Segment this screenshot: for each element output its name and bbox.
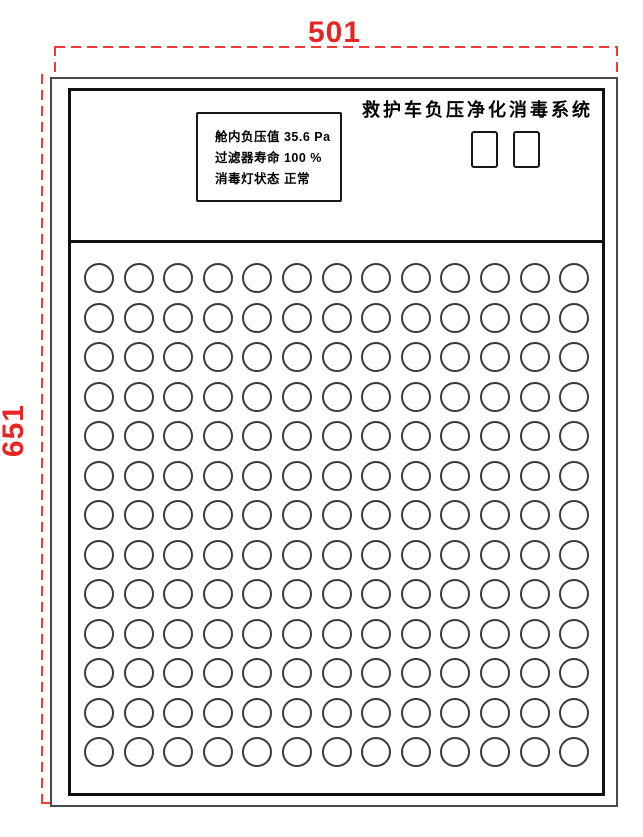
vent-hole — [203, 737, 233, 767]
vent-hole — [520, 303, 550, 333]
vent-hole — [163, 342, 193, 372]
vent-hole — [520, 421, 550, 451]
vent-hole — [361, 500, 391, 530]
vent-hole — [559, 461, 589, 491]
panel-button-1 — [471, 131, 498, 168]
vent-hole — [520, 658, 550, 688]
vent-hole — [163, 461, 193, 491]
vent-hole — [480, 303, 510, 333]
vent-hole — [520, 500, 550, 530]
vent-hole — [163, 500, 193, 530]
vent-hole — [242, 658, 272, 688]
technical-drawing-canvas: 501 651 救护车负压净化消毒系统 舱内负压值 35.6 Pa 过滤器寿命 … — [0, 0, 643, 837]
vent-hole — [282, 619, 312, 649]
vent-hole — [124, 303, 154, 333]
vent-hole — [124, 382, 154, 412]
vent-hole — [480, 382, 510, 412]
vent-hole — [440, 303, 470, 333]
vent-hole — [520, 619, 550, 649]
vent-hole — [361, 737, 391, 767]
vent-hole — [124, 540, 154, 570]
vent-hole — [242, 303, 272, 333]
vent-hole — [361, 579, 391, 609]
vent-hole — [163, 737, 193, 767]
vent-hole — [124, 263, 154, 293]
vent-hole — [124, 461, 154, 491]
vent-hole — [559, 737, 589, 767]
vent-hole — [203, 500, 233, 530]
vent-hole — [84, 579, 114, 609]
vent-hole — [559, 303, 589, 333]
vent-hole — [203, 698, 233, 728]
vent-hole — [440, 540, 470, 570]
vent-hole — [361, 698, 391, 728]
vent-hole — [124, 737, 154, 767]
vent-hole — [480, 737, 510, 767]
vent-hole — [480, 461, 510, 491]
vent-hole — [480, 658, 510, 688]
vent-hole — [322, 421, 352, 451]
display-line-pressure: 舱内负压值 35.6 Pa — [215, 127, 340, 148]
vent-hole — [282, 698, 312, 728]
vent-hole — [124, 579, 154, 609]
vent-hole — [401, 579, 431, 609]
vent-hole — [361, 421, 391, 451]
dimension-line-height — [41, 74, 43, 804]
vent-hole — [84, 540, 114, 570]
vent-hole — [322, 342, 352, 372]
vent-hole — [401, 461, 431, 491]
vent-hole — [242, 421, 272, 451]
vent-hole — [282, 540, 312, 570]
vent-hole — [203, 540, 233, 570]
vent-hole — [163, 658, 193, 688]
vent-hole — [203, 421, 233, 451]
vent-hole — [203, 382, 233, 412]
vent-hole — [520, 579, 550, 609]
vent-hole — [520, 737, 550, 767]
vent-hole — [440, 658, 470, 688]
vent-hole — [559, 540, 589, 570]
vent-hole — [163, 698, 193, 728]
vent-hole — [559, 342, 589, 372]
display-line-filter-life: 过滤器寿命 100 % — [215, 148, 340, 169]
vent-hole — [163, 303, 193, 333]
vent-hole — [163, 382, 193, 412]
vent-hole — [559, 421, 589, 451]
vent-hole — [480, 500, 510, 530]
vent-hole — [322, 540, 352, 570]
dimension-width-label: 501 — [308, 18, 361, 48]
vent-hole — [361, 263, 391, 293]
vent-hole — [440, 500, 470, 530]
vent-hole — [440, 579, 470, 609]
vent-hole — [361, 461, 391, 491]
vent-hole — [84, 461, 114, 491]
vent-hole — [401, 540, 431, 570]
vent-hole — [124, 500, 154, 530]
vent-hole — [282, 303, 312, 333]
vent-hole — [361, 382, 391, 412]
vent-hole — [361, 540, 391, 570]
vent-hole — [440, 461, 470, 491]
vent-hole — [163, 579, 193, 609]
vent-hole — [242, 579, 272, 609]
vent-hole — [559, 382, 589, 412]
display-line-lamp-status: 消毒灯状态 正常 — [215, 169, 340, 190]
vent-hole — [163, 263, 193, 293]
vent-hole — [282, 342, 312, 372]
vent-hole — [361, 658, 391, 688]
vent-hole — [203, 619, 233, 649]
vent-hole — [322, 461, 352, 491]
vent-hole — [401, 303, 431, 333]
vent-hole — [282, 263, 312, 293]
vent-hole — [559, 263, 589, 293]
vent-hole — [84, 658, 114, 688]
vent-hole — [520, 698, 550, 728]
vent-hole — [401, 382, 431, 412]
vent-hole — [242, 737, 272, 767]
panel-button-2 — [513, 131, 540, 168]
panel-title: 救护车负压净化消毒系统 — [362, 96, 593, 122]
vent-hole — [203, 461, 233, 491]
vent-hole — [163, 540, 193, 570]
vent-hole — [480, 698, 510, 728]
vent-hole — [282, 382, 312, 412]
vent-hole — [401, 698, 431, 728]
vent-hole — [242, 382, 272, 412]
vent-hole — [480, 540, 510, 570]
status-display-box: 舱内负压值 35.6 Pa 过滤器寿命 100 % 消毒灯状态 正常 — [196, 112, 342, 202]
vent-hole — [322, 658, 352, 688]
vent-hole — [84, 698, 114, 728]
vent-hole — [559, 619, 589, 649]
vent-hole — [242, 461, 272, 491]
vent-hole — [361, 342, 391, 372]
vent-hole — [84, 421, 114, 451]
vent-hole — [124, 658, 154, 688]
vent-hole — [440, 698, 470, 728]
vent-hole — [322, 382, 352, 412]
vent-hole — [322, 263, 352, 293]
vent-hole — [242, 263, 272, 293]
ventilation-hole-grid — [84, 263, 599, 777]
vent-hole — [559, 500, 589, 530]
vent-hole — [361, 303, 391, 333]
vent-hole — [440, 421, 470, 451]
vent-hole — [242, 540, 272, 570]
vent-hole — [84, 342, 114, 372]
vent-hole — [480, 263, 510, 293]
vent-hole — [440, 382, 470, 412]
vent-hole — [480, 579, 510, 609]
vent-hole — [163, 421, 193, 451]
vent-hole — [242, 698, 272, 728]
vent-hole — [203, 303, 233, 333]
vent-hole — [84, 500, 114, 530]
vent-hole — [84, 382, 114, 412]
vent-hole — [282, 421, 312, 451]
vent-hole — [322, 303, 352, 333]
vent-hole — [401, 342, 431, 372]
vent-hole — [401, 737, 431, 767]
vent-hole — [401, 500, 431, 530]
vent-hole — [520, 263, 550, 293]
dimension-extension-left — [54, 46, 56, 78]
vent-hole — [520, 342, 550, 372]
vent-hole — [163, 619, 193, 649]
vent-hole — [401, 263, 431, 293]
vent-hole — [559, 698, 589, 728]
vent-hole — [559, 658, 589, 688]
vent-hole — [282, 461, 312, 491]
vent-hole — [124, 421, 154, 451]
vent-hole — [520, 540, 550, 570]
vent-hole — [322, 737, 352, 767]
vent-hole — [322, 579, 352, 609]
vent-hole — [440, 263, 470, 293]
vent-hole — [124, 342, 154, 372]
vent-hole — [282, 737, 312, 767]
vent-hole — [322, 619, 352, 649]
vent-hole — [401, 421, 431, 451]
vent-hole — [440, 342, 470, 372]
vent-hole — [282, 658, 312, 688]
panel-section-divider — [70, 240, 603, 243]
vent-hole — [520, 382, 550, 412]
vent-hole — [242, 619, 272, 649]
vent-hole — [322, 698, 352, 728]
vent-hole — [480, 342, 510, 372]
vent-hole — [520, 461, 550, 491]
vent-hole — [242, 500, 272, 530]
vent-hole — [203, 579, 233, 609]
vent-hole — [203, 263, 233, 293]
vent-hole — [282, 500, 312, 530]
vent-hole — [322, 500, 352, 530]
vent-hole — [84, 737, 114, 767]
vent-hole — [242, 342, 272, 372]
vent-hole — [124, 698, 154, 728]
vent-hole — [203, 658, 233, 688]
vent-hole — [124, 619, 154, 649]
vent-hole — [401, 658, 431, 688]
vent-hole — [361, 619, 391, 649]
vent-hole — [401, 619, 431, 649]
vent-hole — [282, 579, 312, 609]
vent-hole — [84, 619, 114, 649]
vent-hole — [84, 303, 114, 333]
vent-hole — [480, 619, 510, 649]
vent-hole — [84, 263, 114, 293]
dimension-extension-right — [616, 46, 618, 78]
vent-hole — [559, 579, 589, 609]
vent-hole — [440, 619, 470, 649]
vent-hole — [480, 421, 510, 451]
vent-hole — [203, 342, 233, 372]
vent-hole — [440, 737, 470, 767]
dimension-height-label: 651 — [0, 404, 29, 457]
